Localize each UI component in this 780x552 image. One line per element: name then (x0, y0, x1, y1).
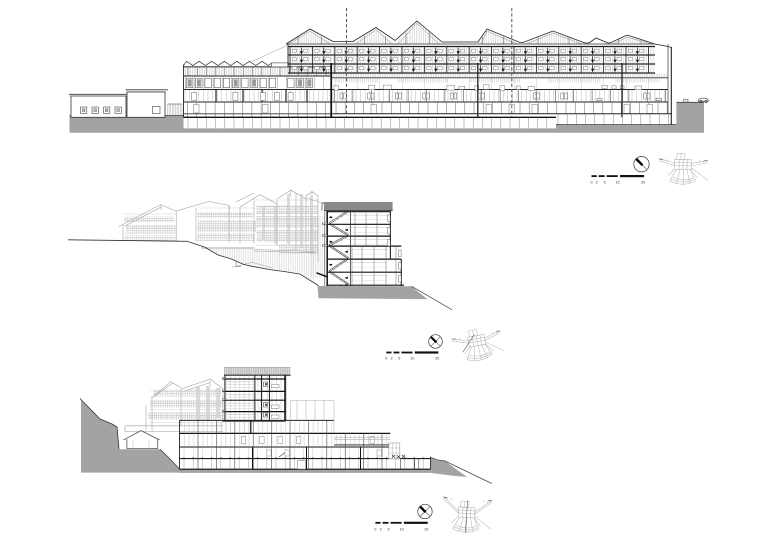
svg-text:0: 0 (591, 181, 593, 185)
svg-text:10: 10 (616, 181, 620, 185)
svg-text:10: 10 (400, 528, 404, 532)
svg-text:2: 2 (391, 356, 393, 360)
svg-text:20: 20 (641, 181, 645, 185)
svg-text:0: 0 (385, 356, 387, 360)
svg-text:5: 5 (604, 181, 606, 185)
svg-text:2: 2 (380, 528, 382, 532)
svg-text:20: 20 (424, 528, 428, 532)
svg-text:5: 5 (388, 528, 390, 532)
svg-text:5: 5 (398, 356, 400, 360)
svg-text:10: 10 (411, 356, 415, 360)
svg-text:20: 20 (435, 356, 439, 360)
svg-text:2: 2 (596, 181, 598, 185)
svg-text:0: 0 (374, 528, 376, 532)
